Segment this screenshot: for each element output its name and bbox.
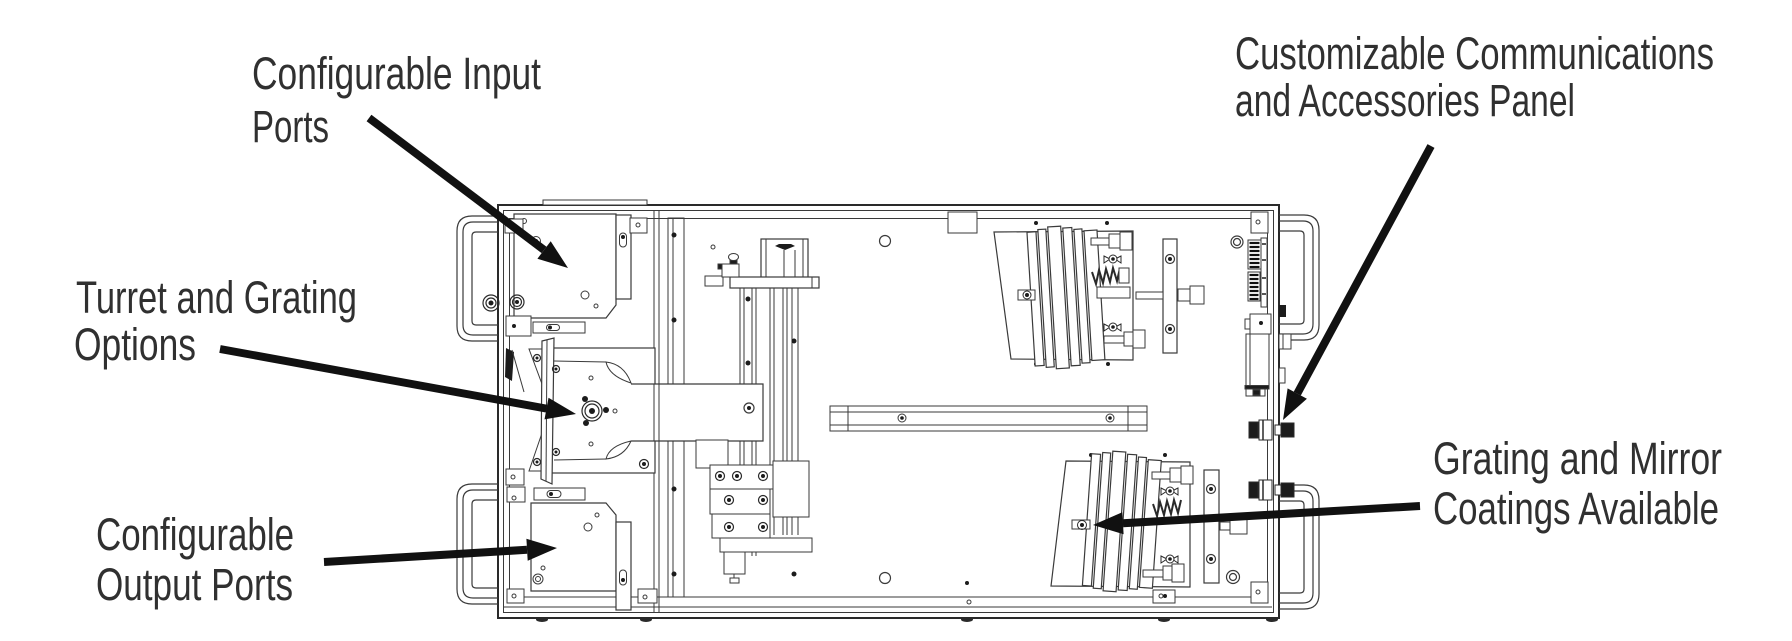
svg-text:Configurable Input: Configurable Input bbox=[252, 48, 541, 99]
svg-text:Configurable: Configurable bbox=[96, 509, 294, 560]
svg-text:Options: Options bbox=[74, 319, 196, 370]
svg-text:Customizable Communications: Customizable Communications bbox=[1235, 28, 1714, 79]
svg-text:Coatings Available: Coatings Available bbox=[1433, 483, 1719, 534]
svg-text:Output Ports: Output Ports bbox=[96, 559, 293, 610]
svg-text:Ports: Ports bbox=[252, 101, 329, 152]
svg-text:Grating and Mirror: Grating and Mirror bbox=[1433, 433, 1722, 484]
svg-text:and Accessories Panel: and Accessories Panel bbox=[1235, 75, 1575, 126]
svg-text:Turret and Grating: Turret and Grating bbox=[76, 272, 357, 323]
